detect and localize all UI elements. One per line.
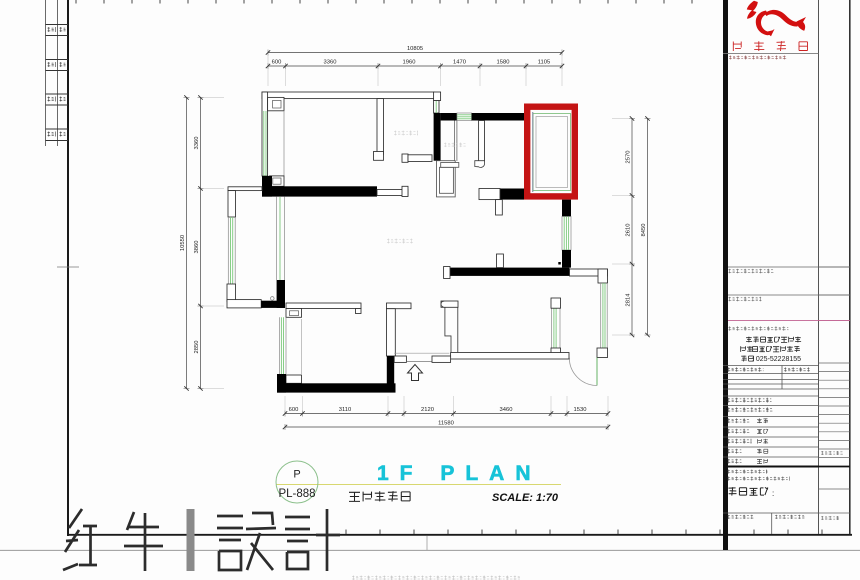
svg-text:8450: 8450 <box>641 224 647 237</box>
svg-text:P: P <box>293 469 300 481</box>
svg-text:1580: 1580 <box>497 60 510 66</box>
svg-text:3860: 3860 <box>194 241 200 254</box>
svg-text:3360: 3360 <box>324 60 337 66</box>
svg-text:SCALE: 1:70: SCALE: 1:70 <box>492 492 559 504</box>
svg-text:2570: 2570 <box>626 151 632 164</box>
svg-text:2814: 2814 <box>626 293 632 307</box>
svg-text:2610: 2610 <box>626 224 632 237</box>
svg-text:1530: 1530 <box>574 407 587 413</box>
svg-text:600: 600 <box>289 407 299 413</box>
svg-text::: : <box>772 489 774 498</box>
svg-text:3460: 3460 <box>500 407 513 413</box>
svg-text:1960: 1960 <box>403 60 416 66</box>
svg-text:1470: 1470 <box>453 60 466 66</box>
svg-text:10805: 10805 <box>407 46 423 52</box>
svg-text:1105: 1105 <box>538 60 550 66</box>
svg-text:2120: 2120 <box>421 407 434 413</box>
svg-text:PL-888: PL-888 <box>278 488 315 500</box>
svg-text:11580: 11580 <box>438 421 454 427</box>
svg-text:1F PLAN: 1F PLAN <box>377 462 542 485</box>
svg-text:3360: 3360 <box>194 137 200 150</box>
svg-text:600: 600 <box>272 60 282 66</box>
svg-text:2850: 2850 <box>194 341 200 354</box>
svg-text:: 025-52228155: : 025-52228155 <box>752 356 801 363</box>
svg-text:10550: 10550 <box>180 235 186 251</box>
svg-text:3110: 3110 <box>339 407 351 413</box>
